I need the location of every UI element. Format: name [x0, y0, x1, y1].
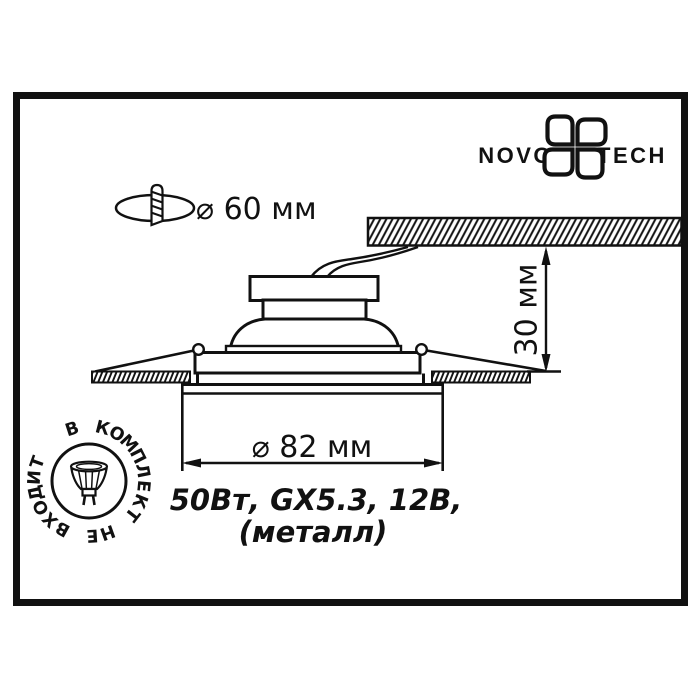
trim-ring — [181, 385, 444, 394]
product-diagram-page: NOVO TECH ⌀ 60 мм — [0, 0, 700, 700]
outer-diameter-label: ⌀ 82 мм — [252, 430, 373, 465]
spec-line-2: (металл) — [239, 515, 388, 549]
left-clip-pivot — [193, 344, 204, 355]
fixture-body — [195, 277, 424, 384]
recess-depth-label: 30 мм — [510, 264, 545, 357]
lampholder-neck — [263, 300, 366, 319]
mr16-lamp-icon — [71, 462, 107, 505]
stamp-letter: Е — [86, 525, 99, 546]
right-clip-pivot — [416, 344, 427, 355]
brand-name-right: TECH — [597, 143, 667, 168]
arrow-up — [542, 247, 551, 266]
lamp-pins — [84, 496, 95, 506]
housing-sides — [198, 374, 424, 384]
stamp-letter: Т — [27, 454, 50, 472]
lamp-not-included-stamp: ВКОМПЛЕКТНЕВХОДИТ — [25, 417, 154, 545]
outer-diameter-dimension: ⌀ 82 мм — [182, 384, 443, 471]
stamp-letter: И — [25, 470, 46, 486]
stamp-letter: Л — [131, 462, 153, 480]
arrow-right — [424, 459, 443, 468]
installation-diagram: NOVO TECH ⌀ 60 мм — [0, 0, 700, 700]
left-clip-arm — [95, 351, 194, 372]
supply-wire — [311, 247, 418, 277]
terminal-block — [250, 277, 378, 301]
spec-line-1: 50Вт, GX5.3, 12В, — [170, 483, 463, 517]
stamp-letter: В — [63, 418, 82, 441]
mounting-plate — [195, 353, 420, 374]
right-trim-flange — [432, 372, 530, 383]
novotech-logo: NOVO TECH — [478, 117, 667, 178]
drill-hole-icon — [116, 185, 194, 225]
ceiling-panel — [368, 218, 682, 246]
brand-name-left: NOVO — [478, 143, 553, 168]
arrow-left — [182, 459, 201, 468]
cutout-diameter-label: ⌀ 60 мм — [196, 192, 317, 227]
stamp-letter: Н — [97, 520, 118, 544]
cutout-callout: ⌀ 60 мм — [116, 185, 317, 227]
recess-depth-dimension: 30 мм — [510, 247, 562, 373]
left-trim-flange — [92, 372, 190, 383]
